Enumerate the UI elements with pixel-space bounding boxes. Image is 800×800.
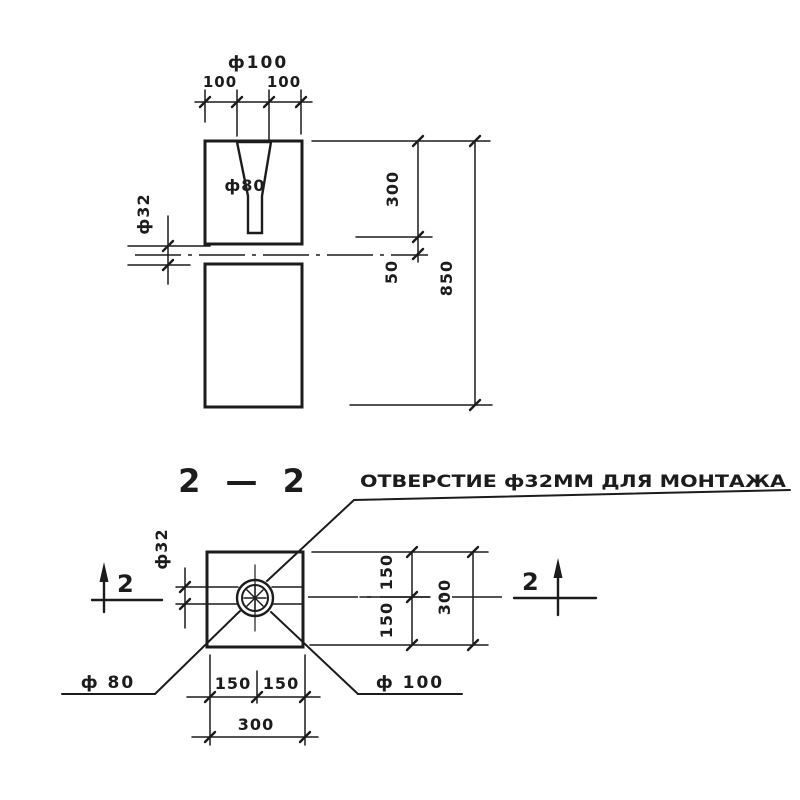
technical-drawing: ф80 ф100 100 100: [0, 0, 800, 800]
section-marker-left-label: 2: [117, 570, 134, 598]
leader-100: ф 100: [271, 612, 462, 694]
leader-100-label: ф 100: [376, 673, 444, 693]
dim-right-total-label: 850: [437, 260, 456, 296]
dim-plan-bottom-total-label: 300: [238, 715, 274, 734]
dim-plan-bottom-left-label: 150: [215, 674, 251, 693]
dim-right-mid-label: 50: [382, 260, 401, 284]
dim-plan-right: 150 150 300: [310, 547, 488, 650]
dim-top-left-label: 100: [203, 73, 237, 91]
dim-top-diameter-label: ф100: [228, 53, 288, 73]
annotation-text: ОТВЕРСТИЕ ф32ММ ДЛЯ МОНТАЖА: [360, 472, 787, 492]
dim-plan-right-top-label: 150: [377, 554, 396, 590]
dim-plan-right-bottom-label: 150: [377, 602, 396, 638]
arrow-up-icon: [100, 562, 109, 582]
plan-view: 2 — 2 ОТВЕРСТИЕ ф32ММ ДЛЯ МОНТАЖА: [62, 462, 790, 745]
dim-plan-bottom-right-label: 150: [263, 674, 299, 693]
dim-right: 300 50 850: [312, 136, 492, 410]
elevation-view: ф80 ф100 100 100: [128, 53, 492, 410]
leader-80-label: ф 80: [81, 673, 135, 693]
block-lower-section: [205, 264, 302, 407]
dim-plan-hole: ф32: [152, 528, 190, 628]
dim-plan-right-total-label: 300: [435, 579, 454, 615]
dim-top-right-label: 100: [267, 73, 301, 91]
leader-80: ф 80: [62, 611, 240, 694]
dim-top: ф100 100 100: [195, 53, 312, 140]
dim-hole-side-label: ф32: [134, 193, 153, 234]
section-marker-right: 2: [514, 558, 596, 615]
arrow-up-icon: [554, 558, 563, 578]
section-title: 2 — 2: [178, 462, 312, 500]
section-marker-right-label: 2: [522, 568, 539, 596]
dim-left-hole: ф32: [128, 193, 210, 284]
annotation-leader: [267, 500, 354, 581]
circle-hatch: [244, 586, 266, 610]
hole-diameter-label: ф80: [224, 176, 265, 195]
dim-right-upper-label: 300: [383, 171, 402, 207]
dim-plan-bottom: 150 150 300: [187, 655, 320, 745]
dim-plan-hole-label: ф32: [152, 528, 171, 569]
